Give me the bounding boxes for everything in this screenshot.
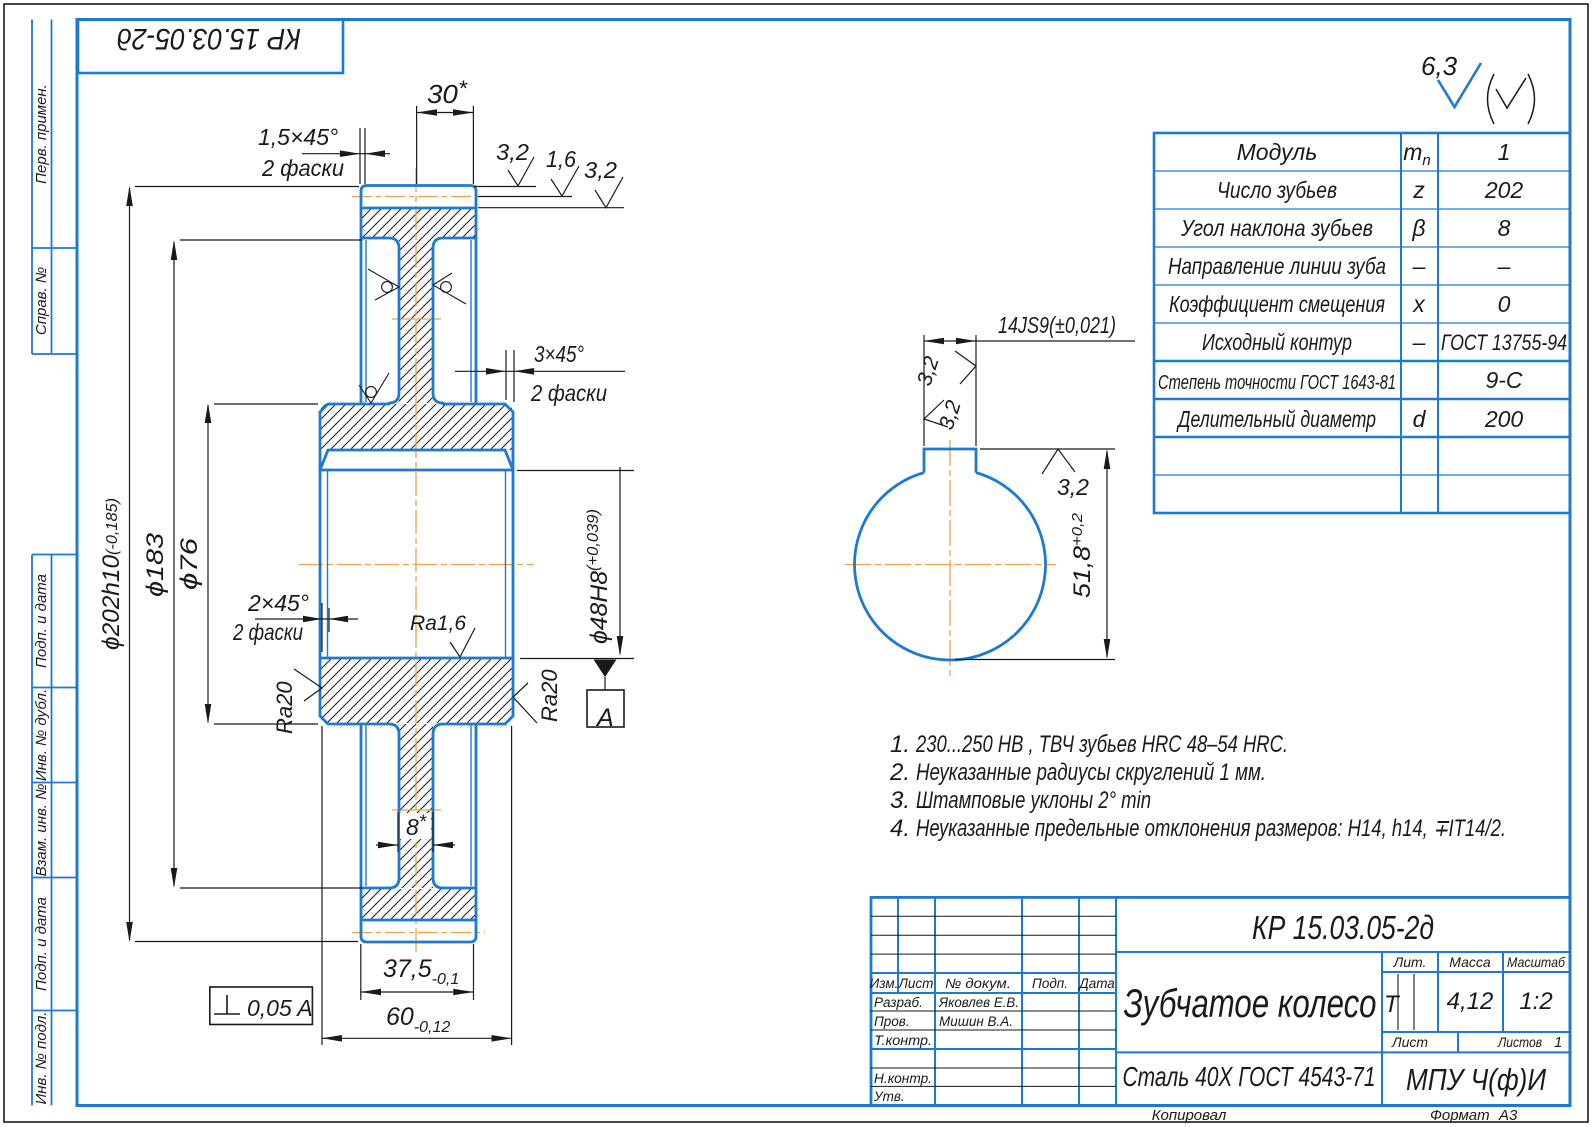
svg-text:Взам. инв. №: Взам. инв. № xyxy=(33,784,50,877)
svg-text:Разраб.: Разраб. xyxy=(874,995,923,1010)
svg-text:–: – xyxy=(1412,329,1426,355)
svg-text:Копировал: Копировал xyxy=(1152,1107,1227,1124)
svg-text:Штамповые уклоны 2° min: Штамповые уклоны 2° min xyxy=(916,787,1151,814)
svg-text:Листов: Листов xyxy=(1497,1034,1542,1050)
svg-text:Подп. и дата: Подп. и дата xyxy=(33,897,50,991)
svg-text:3,2: 3,2 xyxy=(496,139,529,165)
svg-text:9-С: 9-С xyxy=(1485,367,1522,393)
svg-text:КР 15.03.05-2д: КР 15.03.05-2д xyxy=(117,22,301,55)
svg-text:Лит.: Лит. xyxy=(1393,954,1427,970)
svg-text:Делительный диаметр: Делительный диаметр xyxy=(1176,406,1376,432)
svg-text:А3: А3 xyxy=(1498,1107,1518,1124)
svg-text:Масса: Масса xyxy=(1449,954,1491,970)
svg-text:Ra1,6: Ra1,6 xyxy=(410,612,466,635)
svg-text:Пров.: Пров. xyxy=(874,1014,910,1029)
svg-text:2×45°: 2×45° xyxy=(247,590,309,616)
svg-text:3×45°: 3×45° xyxy=(534,341,584,367)
svg-text:Дата: Дата xyxy=(1077,976,1115,991)
svg-text:Т.контр.: Т.контр. xyxy=(874,1033,932,1048)
svg-text:1,6: 1,6 xyxy=(546,146,576,172)
svg-text:6,3: 6,3 xyxy=(1421,51,1458,81)
svg-text:230...250 НВ , ТВЧ зубьев HRC: 230...250 НВ , ТВЧ зубьев HRC 48–54 HRC. xyxy=(915,731,1288,758)
svg-text:3,2: 3,2 xyxy=(1057,474,1089,500)
svg-text:Число зубьев: Число зубьев xyxy=(1217,177,1337,203)
svg-text:Перв. примен.: Перв. примен. xyxy=(33,84,50,184)
svg-text:Неуказанные предельные отклоне: Неуказанные предельные отклонения размер… xyxy=(916,815,1506,842)
svg-text:Справ. №: Справ. № xyxy=(33,267,50,335)
svg-text:Подп. и дата: Подп. и дата xyxy=(33,574,50,668)
svg-text:1,5×45°: 1,5×45° xyxy=(258,124,338,150)
svg-text:2 фаски: 2 фаски xyxy=(232,619,303,645)
svg-text:Исходный контур: Исходный контур xyxy=(1202,329,1352,355)
svg-text:Лист: Лист xyxy=(898,976,934,991)
svg-text:2.: 2. xyxy=(889,759,910,786)
svg-text:–: – xyxy=(1412,253,1426,279)
svg-text:Инв. № подл.: Инв. № подл. xyxy=(33,1011,50,1104)
svg-text:8: 8 xyxy=(1498,215,1511,241)
svg-text:x: x xyxy=(1412,291,1426,317)
svg-text:4,12: 4,12 xyxy=(1447,988,1494,1015)
svg-text:0,05 A: 0,05 A xyxy=(247,995,313,1021)
svg-text:–: – xyxy=(1497,253,1511,279)
svg-text:ГОСТ 13755-94: ГОСТ 13755-94 xyxy=(1441,330,1567,355)
svg-text:Лист: Лист xyxy=(1391,1034,1428,1050)
svg-text:Масштаб: Масштаб xyxy=(1507,954,1566,970)
svg-text:2 фаски: 2 фаски xyxy=(530,380,607,406)
svg-text:Мишин В.А.: Мишин В.А. xyxy=(939,1014,1013,1029)
svg-text:Утв.: Утв. xyxy=(873,1089,905,1104)
svg-text:Сталь 40Х ГОСТ 4543-71: Сталь 40Х ГОСТ 4543-71 xyxy=(1123,1061,1376,1092)
svg-text:Т: Т xyxy=(1384,991,1401,1018)
svg-text:z: z xyxy=(1412,177,1425,203)
svg-text:№ докум.: № докум. xyxy=(945,976,1011,991)
svg-text:1:2: 1:2 xyxy=(1519,988,1552,1015)
svg-text:Инв. № дубл.: Инв. № дубл. xyxy=(33,689,50,781)
svg-text:4.: 4. xyxy=(890,815,910,842)
svg-text:Угол наклона зубьев: Угол наклона зубьев xyxy=(1180,215,1373,241)
svg-text:Ra20: Ra20 xyxy=(537,669,562,722)
svg-text:14JS9(±0,021): 14JS9(±0,021) xyxy=(998,312,1116,338)
svg-text:Зубчатое колесо: Зубчатое колесо xyxy=(1124,982,1377,1026)
svg-text:Степень точности ГОСТ 1643-81: Степень точности ГОСТ 1643-81 xyxy=(1158,372,1396,394)
svg-text:Направление линии зуба: Направление линии зуба xyxy=(1168,253,1386,279)
svg-text:1.: 1. xyxy=(890,731,910,758)
svg-text:d: d xyxy=(1413,406,1427,432)
svg-text:КР 15.03.05-2д: КР 15.03.05-2д xyxy=(1252,909,1434,946)
svg-text:2 фаски: 2 фаски xyxy=(261,155,344,181)
svg-text:Яковлев Е.В.: Яковлев Е.В. xyxy=(938,995,1019,1010)
svg-text:3.: 3. xyxy=(890,787,910,814)
svg-text:Формат: Формат xyxy=(1430,1107,1490,1124)
svg-text:Н.контр.: Н.контр. xyxy=(874,1071,932,1086)
svg-text:Коэффициент смещения: Коэффициент смещения xyxy=(1169,291,1385,317)
svg-text:202: 202 xyxy=(1484,177,1524,203)
svg-text:Модуль: Модуль xyxy=(1237,139,1318,165)
svg-text:3,2: 3,2 xyxy=(584,157,617,183)
svg-text:1: 1 xyxy=(1554,1034,1562,1051)
svg-text:1: 1 xyxy=(1498,139,1511,165)
svg-text:200: 200 xyxy=(1484,406,1524,432)
svg-text:Неуказанные радиусы скруглений: Неуказанные радиусы скруглений 1 мм. xyxy=(916,759,1266,786)
svg-text:β: β xyxy=(1411,215,1425,241)
svg-text:ϕ183: ϕ183 xyxy=(142,532,169,597)
svg-text:Ra20: Ra20 xyxy=(272,681,297,734)
svg-text:МПУ Ч(ф)И: МПУ Ч(ф)И xyxy=(1406,1062,1547,1097)
svg-text:Подп.: Подп. xyxy=(1032,976,1068,991)
svg-text:ϕ76: ϕ76 xyxy=(176,537,203,590)
svg-text:0: 0 xyxy=(1498,291,1511,317)
svg-text:Изм.: Изм. xyxy=(870,976,899,991)
